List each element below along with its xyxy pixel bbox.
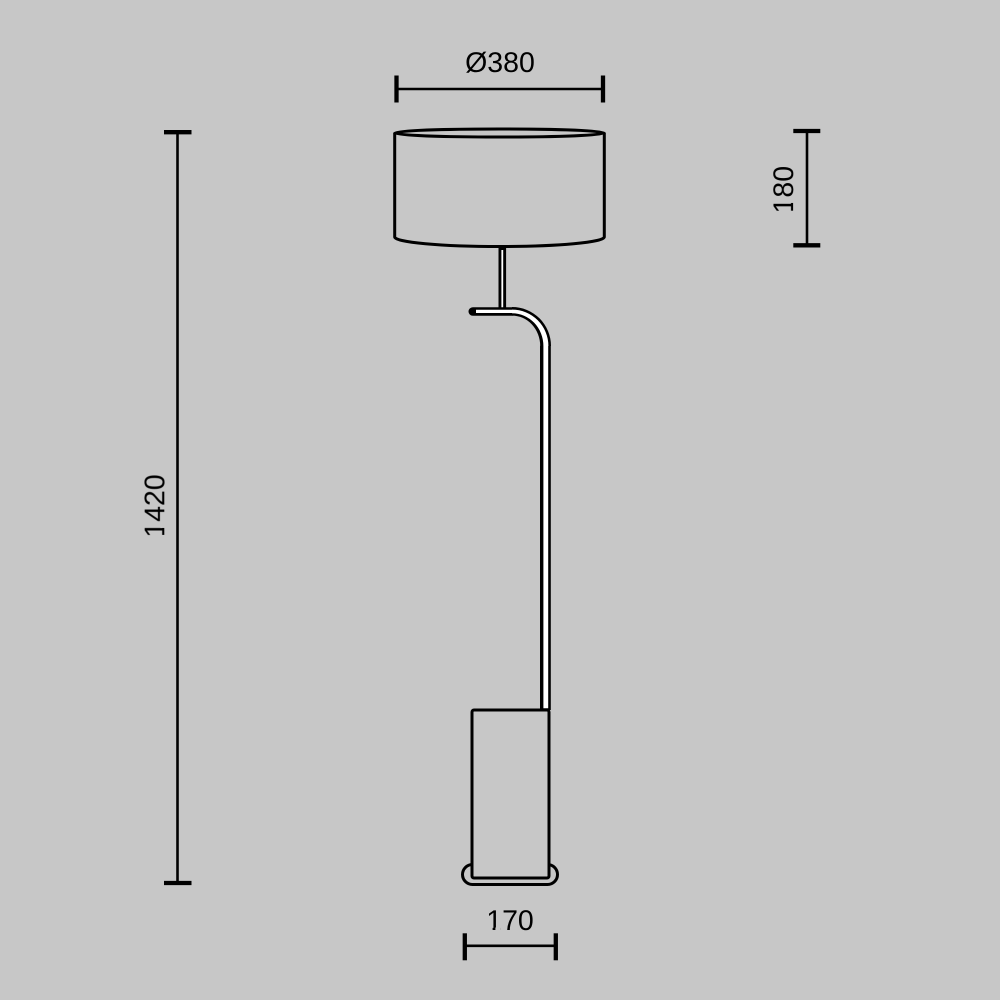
svg-text:1420: 1420 (139, 474, 171, 537)
svg-text:170: 170 (486, 905, 534, 937)
svg-text:Ø380: Ø380 (465, 47, 535, 79)
svg-text:180: 180 (768, 166, 800, 214)
